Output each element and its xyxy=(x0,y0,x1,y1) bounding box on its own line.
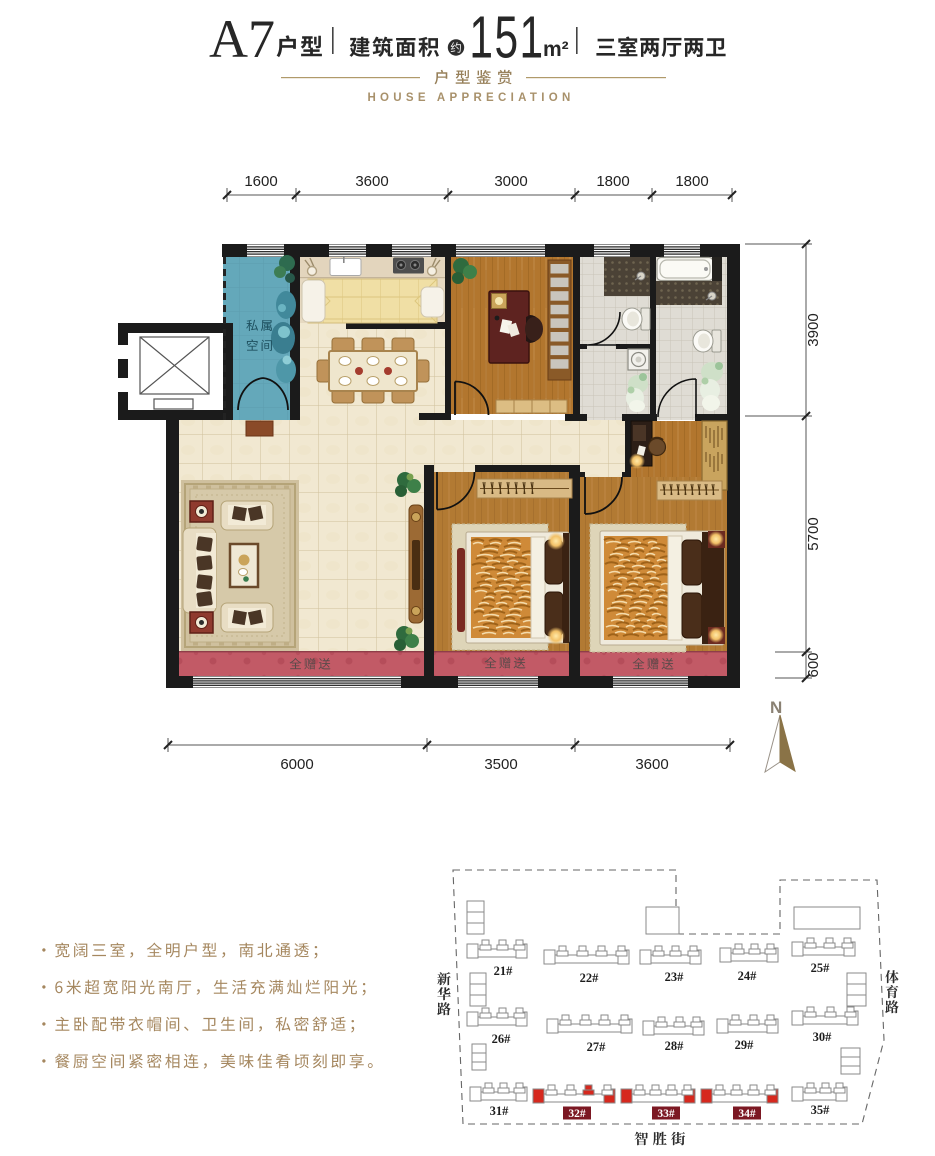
svg-text:1800: 1800 xyxy=(675,173,708,190)
svg-text:28#: 28# xyxy=(665,1039,685,1053)
svg-text:HOUSE APPRECIATION: HOUSE APPRECIATION xyxy=(367,92,574,104)
svg-text:24#: 24# xyxy=(738,969,758,983)
svg-text:3500: 3500 xyxy=(484,756,517,773)
svg-text:1600: 1600 xyxy=(244,173,277,190)
svg-text:25#: 25# xyxy=(811,961,831,975)
svg-text:32#: 32# xyxy=(568,1108,586,1120)
svg-text:30#: 30# xyxy=(813,1030,833,1044)
svg-text:34#: 34# xyxy=(738,1108,756,1120)
svg-text:35#: 35# xyxy=(811,1103,831,1117)
svg-text:3600: 3600 xyxy=(635,756,668,773)
svg-text:29#: 29# xyxy=(735,1038,755,1052)
svg-text:1800: 1800 xyxy=(596,173,629,190)
svg-text:3900: 3900 xyxy=(805,313,822,346)
svg-text:6000: 6000 xyxy=(280,756,313,773)
svg-text:m²: m² xyxy=(543,38,569,61)
svg-text:22#: 22# xyxy=(580,971,600,985)
svg-text:27#: 27# xyxy=(587,1040,607,1054)
svg-text:3000: 3000 xyxy=(494,173,527,190)
svg-text:A7: A7 xyxy=(209,9,275,69)
svg-text:600: 600 xyxy=(805,652,822,677)
svg-text:26#: 26# xyxy=(492,1032,512,1046)
svg-text:3600: 3600 xyxy=(355,173,388,190)
svg-text:151: 151 xyxy=(469,4,544,71)
svg-text:31#: 31# xyxy=(490,1104,510,1118)
svg-text:33#: 33# xyxy=(657,1108,675,1120)
svg-text:21#: 21# xyxy=(494,964,514,978)
svg-text:N: N xyxy=(770,698,782,717)
svg-text:5700: 5700 xyxy=(805,517,822,550)
svg-text:23#: 23# xyxy=(665,970,685,984)
